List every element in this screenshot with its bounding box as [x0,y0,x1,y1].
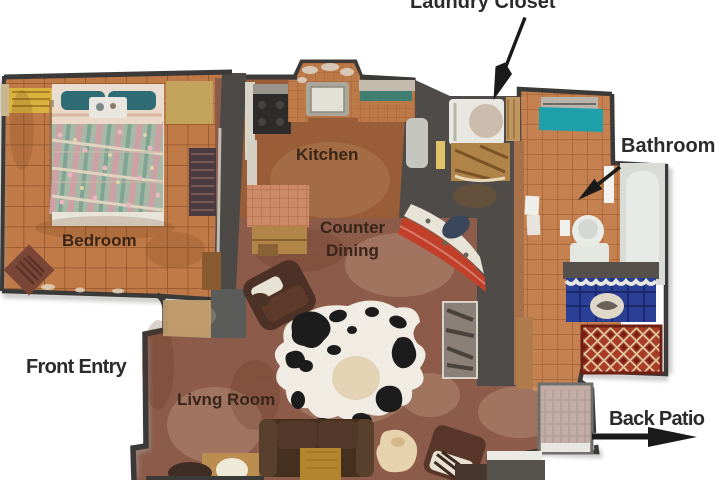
svg-text:Kitchen: Kitchen [296,145,358,164]
svg-text:Bathroom: Bathroom [621,135,715,157]
svg-text:Livng Room: Livng Room [177,390,275,409]
svg-text:Front Entry: Front Entry [26,356,128,378]
svg-text:Back Patio: Back Patio [609,408,705,430]
svg-text:Dining: Dining [326,241,379,260]
svg-text:Bedroom: Bedroom [62,231,137,250]
svg-text:Counter: Counter [320,218,386,237]
svg-text:Laundry Closet: Laundry Closet [410,0,556,13]
